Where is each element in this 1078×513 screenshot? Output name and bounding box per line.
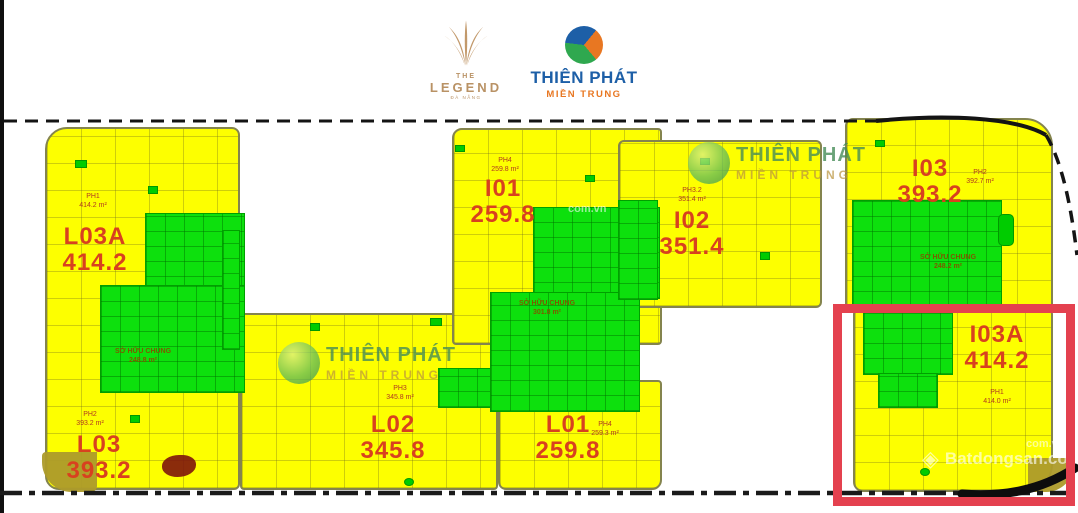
ph-label: PH3 [365,384,435,393]
green-accent [998,214,1014,246]
common-area-left-strip [222,230,240,350]
ph-area: 414.2 m² [58,201,128,210]
green-accent [148,186,158,194]
watermark-name: THIÊN PHÁT [736,144,866,167]
ph-text-L03: PH2 393.2 m² [55,410,125,428]
green-accent [404,478,414,486]
ca-area: 301.8 m² [502,308,592,317]
unit-code: L03 [44,432,154,458]
unit-area: 393.2 [44,458,154,484]
thienphat-sphere-icon [565,26,603,64]
highlight-box-I03A [833,304,1075,506]
ph-area: 259.8 m² [470,165,540,174]
common-area-caption-2: SỞ HỮU CHUNG 301.8 m² [502,299,592,317]
thienphat-sub-text: MIỀN TRUNG [526,89,642,100]
green-accent [875,140,885,147]
ph-label: PH2 [945,168,1015,177]
green-accent [75,160,87,168]
ph-area: 345.8 m² [365,393,435,402]
the-legend-logo: THE LEGEND ĐÀ NẴNG [425,16,507,100]
unit-code: I01 [448,176,558,202]
unit-label-L03: L03 393.2 [44,432,154,484]
watermark-sub: MIỀN TRUNG [736,168,866,182]
ph-label: PH4 [570,420,640,429]
green-accent [310,323,320,331]
ph-text-I03: PH2 392.7 m² [945,168,1015,186]
unit-area: 259.8 [513,438,623,464]
unit-area: 259.8 [448,202,558,228]
ca-area: 248.8 m² [98,356,188,365]
ph-text-I01: PH4 259.8 m² [470,156,540,174]
ph-area: 393.2 m² [55,419,125,428]
legend-the-text: THE [425,73,507,80]
unit-label-I01: I01 259.8 [448,176,558,228]
unit-area: 414.2 [40,250,150,276]
legend-name-text: LEGEND [425,80,507,95]
green-accent [585,175,595,182]
common-area-caption-3: SỞ HỮU CHUNG 248.2 m² [903,253,993,271]
ph-text-L02: PH3 345.8 m² [365,384,435,402]
watermark-circle-icon [278,342,320,384]
thienphat-logo: THIÊN PHÁT MIỀN TRUNG [526,26,642,100]
unit-code: L03A [40,224,150,250]
unit-label-L02: L02 345.8 [338,412,448,464]
watermark-thienphat-2: THIÊN PHÁT MIỀN TRUNG [278,342,456,384]
unit-area: 351.4 [637,234,747,260]
green-accent [130,415,140,423]
ph-label: PH4 [470,156,540,165]
ca-area: 248.2 m² [903,262,993,271]
legend-sub-text: ĐÀ NẴNG [425,95,507,100]
watermark-sub: MIỀN TRUNG [326,368,456,382]
green-accent [760,252,770,260]
watermark-thienphat-1: THIÊN PHÁT MIỀN TRUNG [688,142,866,184]
thienphat-name-text: THIÊN PHÁT [526,68,642,88]
watermark-comvn-2: com.vn [568,203,607,215]
common-area-caption-1: SỞ HỮU CHUNG 248.8 m² [98,347,188,365]
left-border-line [0,0,4,513]
green-accent [455,145,465,152]
watermark-name: THIÊN PHÁT [326,344,456,367]
ph-label: PH2 [55,410,125,419]
unit-code: L02 [338,412,448,438]
ph-text-L01: PH4 259.3 m² [570,420,640,438]
unit-area: 345.8 [338,438,448,464]
watermark-circle-icon [688,142,730,184]
ph-area: 351.4 m² [657,195,727,204]
ph-area: 259.3 m² [570,429,640,438]
ca-label: SỞ HỮU CHUNG [502,299,592,308]
palm-leaf-icon [439,16,493,70]
unit-code: I02 [637,208,747,234]
ca-label: SỞ HỮU CHUNG [98,347,188,356]
ph-label: PH1 [58,192,128,201]
ca-label: SỞ HỮU CHUNG [903,253,993,262]
ph-label: PH3.2 [657,186,727,195]
unit-label-L03A: L03A 414.2 [40,224,150,276]
unit-label-I02: I02 351.4 [637,208,747,260]
ph-area: 392.7 m² [945,177,1015,186]
green-accent [430,318,442,326]
floor-plan-canvas: THE LEGEND ĐÀ NẴNG THIÊN PHÁT MIỀN TRUNG [0,0,1078,513]
ph-text-L03A: PH1 414.2 m² [58,192,128,210]
ph-text-I02: PH3.2 351.4 m² [657,186,727,204]
